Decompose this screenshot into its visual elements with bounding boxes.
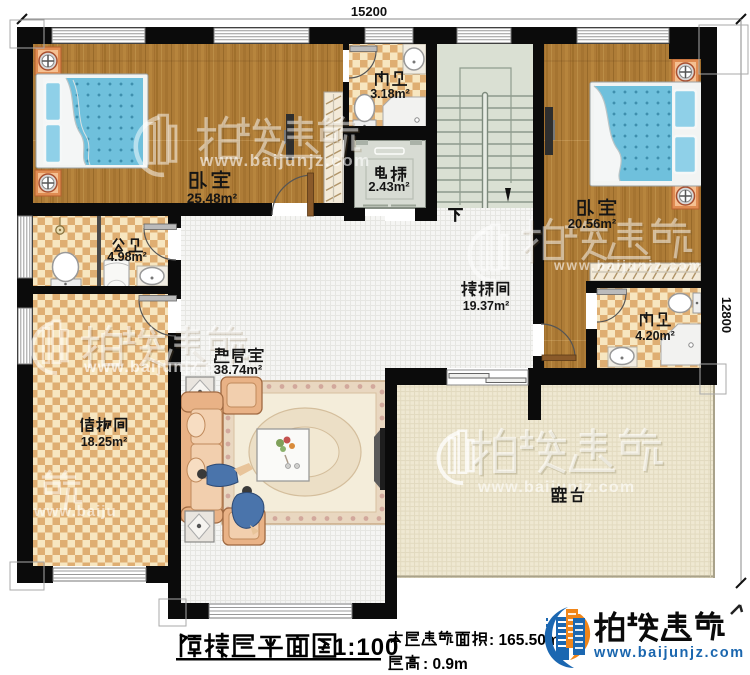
- svg-text:: 0.9m: : 0.9m: [423, 656, 468, 673]
- svg-text:19.37m²: 19.37m²: [463, 299, 510, 313]
- svg-text:12800: 12800: [719, 297, 734, 333]
- svg-text:38.74m²: 38.74m²: [214, 362, 263, 377]
- svg-text:25.48m²: 25.48m²: [187, 191, 238, 206]
- svg-text:www.baiju: www.baiju: [33, 503, 117, 520]
- svg-text:15200: 15200: [351, 4, 387, 19]
- svg-text:20.56m²: 20.56m²: [568, 216, 617, 231]
- svg-text:www.baijunjz.com: www.baijunjz.com: [593, 645, 745, 661]
- svg-text:www.baijunjz.com: www.baijunjz.com: [199, 151, 371, 170]
- svg-text:2.43m²: 2.43m²: [368, 179, 410, 194]
- svg-text:4.20m²: 4.20m²: [635, 329, 675, 343]
- svg-text:18.25m²: 18.25m²: [81, 435, 128, 449]
- svg-text:4.98m²: 4.98m²: [107, 250, 147, 264]
- svg-text:www.baijunjz.com: www.baijunjz.com: [553, 258, 703, 273]
- svg-text:3.18m²: 3.18m²: [370, 87, 410, 101]
